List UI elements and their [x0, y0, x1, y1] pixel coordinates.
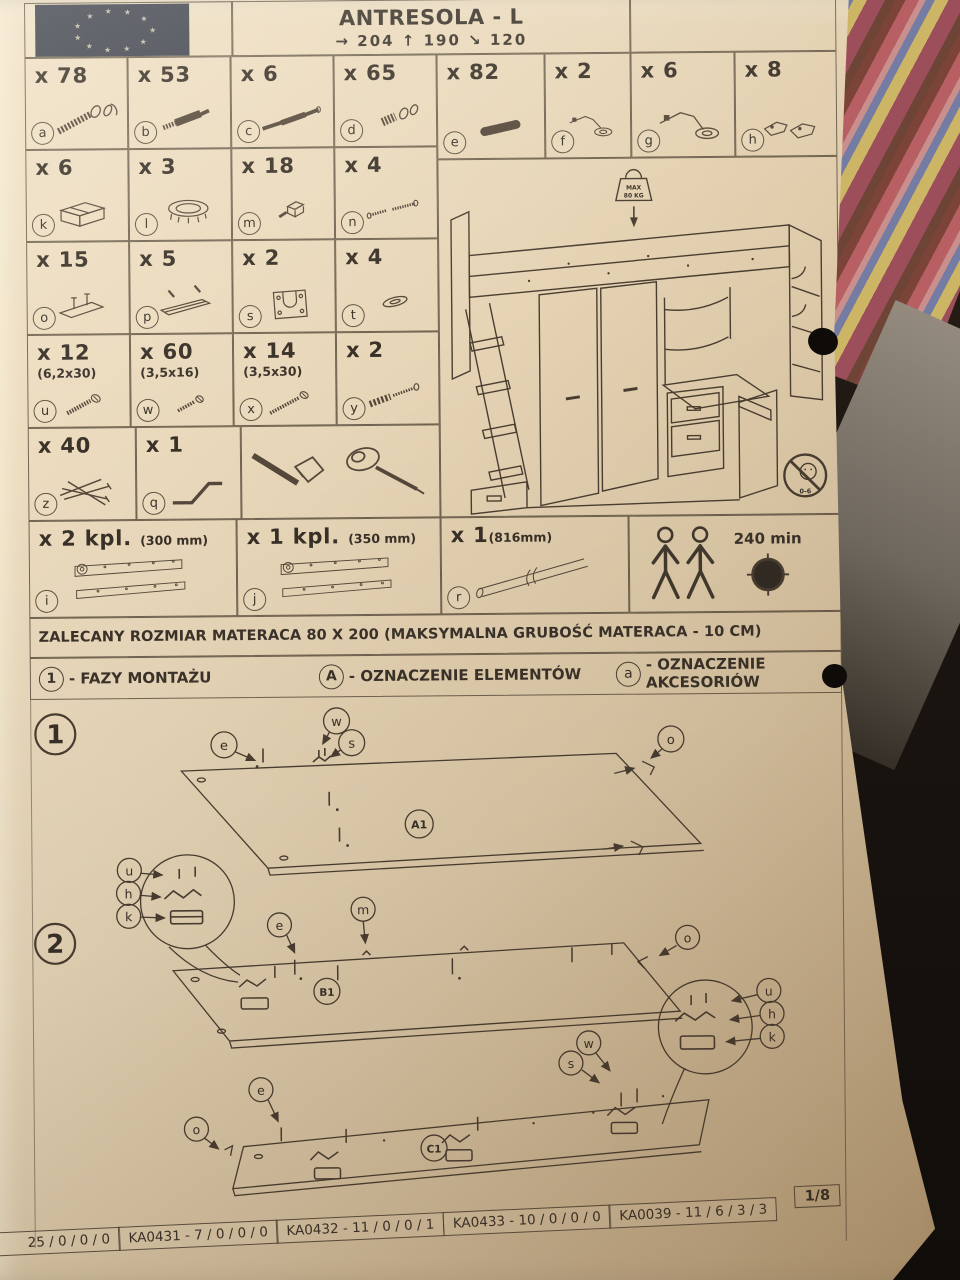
part-cell-m: x 18 m	[231, 147, 335, 240]
svg-text:s: s	[568, 1056, 575, 1071]
callout-e: e	[211, 732, 255, 761]
washer-icon	[360, 280, 435, 324]
part-cell-r: x 1(816mm) r	[441, 516, 630, 615]
legend-phase-text: - FAZY MONTAŻU	[69, 668, 212, 687]
wooden-dowel-icon	[462, 101, 541, 151]
callout-h: h	[116, 881, 160, 905]
part-cell-o: x 15 o	[26, 241, 130, 335]
callout-e-c1: e	[249, 1078, 281, 1142]
svg-text:80 KG: 80 KG	[624, 192, 644, 199]
svg-text:★: ★	[124, 8, 131, 17]
svg-text:e: e	[276, 918, 284, 933]
assembly-time: 240 min	[734, 529, 802, 548]
product-title: ANTRESOLA - L	[339, 4, 524, 30]
part-cell-p: x 5 p	[129, 240, 233, 334]
part-qty: x 78	[25, 58, 126, 88]
part-qty: x 2 kpl.	[39, 526, 133, 551]
instruction-sheet: ★★★ ★★★ ★★★ ★★ ANTRESOLA - L → 204 ↑ 190…	[0, 0, 960, 1280]
mounting-bracket-icon	[759, 99, 833, 149]
legend-band: 1 - FAZY MONTAŻU A - OZNACZENIE ELEMENTÓ…	[30, 651, 842, 700]
metal-rod-icon	[255, 96, 330, 140]
element-symbol: A	[319, 664, 344, 689]
part-cell-h: x 8 h	[734, 51, 837, 157]
panel-label-A1: A1	[405, 810, 433, 838]
wood-screw-icon	[155, 387, 230, 419]
logo-cell: ★★★ ★★★ ★★★ ★★	[24, 1, 232, 58]
round-tube-icon	[450, 547, 622, 607]
callout-o-b1: o	[638, 925, 700, 968]
part-cell-j: x 1 kpl. (350 mm) j	[237, 517, 442, 616]
svg-text:★: ★	[140, 14, 147, 23]
photo-of-instruction-sheet: ★★★ ★★★ ★★★ ★★ ANTRESOLA - L → 204 ↑ 190…	[0, 0, 960, 1280]
part-cell-k: x 6 k	[25, 149, 129, 242]
legend-elements: A - OZNACZENIE ELEMENTÓW	[319, 662, 581, 689]
part-cell-i: x 2 kpl. (300 mm) i	[29, 519, 238, 618]
drawer-slides-icon	[38, 552, 228, 611]
svg-text:w: w	[584, 1036, 594, 1051]
part-cell-u: x 12 (6,2x30) u	[27, 334, 131, 428]
assembly-info-cell: 240 min	[628, 514, 841, 613]
part-cell-l: x 3 l	[128, 148, 232, 241]
svg-text:w: w	[331, 715, 342, 730]
part-cell-w: x 60 (3,5x16) w	[130, 333, 234, 427]
step-1: 1	[35, 705, 704, 877]
product-dimensions: → 204 ↑ 190 ↘ 120	[335, 30, 527, 50]
callout-e-b1: e	[267, 913, 294, 953]
phase-symbol: 1	[39, 666, 64, 691]
svg-text:★: ★	[74, 33, 81, 42]
wood-screw-icon	[52, 388, 127, 420]
legend-elements-text: - OZNACZENIE ELEMENTÓW	[349, 665, 581, 685]
part-cell-z: x 40 z	[28, 427, 137, 521]
svg-text:★: ★	[86, 42, 93, 51]
svg-text:B1: B1	[319, 987, 334, 999]
cam-lock-icon	[358, 95, 433, 139]
machine-screws-icon	[359, 187, 434, 231]
allen-key-icon	[161, 467, 238, 511]
confirmat-screw-icon	[49, 98, 124, 142]
tools-cell	[241, 424, 441, 519]
callout-u2: u	[732, 978, 781, 1002]
ladder	[466, 303, 529, 514]
callout-k2: k	[726, 1024, 784, 1048]
callout-o-c1: o	[184, 1117, 232, 1156]
panel-label-B1: B1	[314, 978, 340, 1004]
mattress-note-band: ZALECANY ROZMIAR MATERACA 80 X 200 (MAKS…	[29, 611, 841, 658]
svg-text:★: ★	[86, 12, 93, 21]
part-cell-n: x 4 n	[334, 146, 438, 239]
panel-A1	[181, 753, 701, 869]
part-cell-y: x 2 y	[336, 331, 440, 425]
callout-o: o	[651, 726, 684, 758]
svg-text:A1: A1	[411, 818, 427, 831]
svg-text:★: ★	[74, 22, 81, 31]
timer-icon	[745, 551, 791, 597]
runner-block-icon	[50, 190, 125, 234]
svg-text:h: h	[125, 886, 133, 901]
panel-label-C1: C1	[421, 1135, 447, 1161]
svg-text:h: h	[768, 1006, 776, 1021]
panel-C1	[232, 1100, 710, 1189]
svg-text:MAX: MAX	[626, 184, 642, 191]
wall-plug-screw-icon	[361, 373, 436, 417]
svg-text:e: e	[220, 739, 228, 754]
svg-text:C1: C1	[426, 1143, 441, 1155]
detail-bubble-right: u h k	[658, 978, 785, 1124]
legend-accessories-text: - OZNACZENIE AKCESORIÓW	[646, 654, 841, 692]
svg-text:o: o	[193, 1122, 201, 1137]
svg-text:m: m	[357, 902, 369, 917]
legend-accessories: a - OZNACZENIE AKCESORIÓW	[616, 654, 841, 692]
part-cell-t: x 4 t	[335, 238, 439, 332]
shelf-support-icon	[256, 188, 331, 232]
callout-h2: h	[730, 1001, 784, 1025]
part-qty: x 1 kpl.	[247, 524, 341, 549]
svg-text:1: 1	[46, 720, 64, 750]
svg-text:★: ★	[123, 44, 130, 53]
page-indicator: 1/8	[794, 1184, 840, 1208]
part-cell-d: x 65 d	[333, 54, 437, 147]
u-bracket-icon	[257, 281, 332, 325]
assembly-steps-area: 1	[30, 693, 847, 1248]
step-2: 2 u h k	[34, 850, 785, 1198]
screwdriver-icon	[344, 444, 424, 494]
svg-text:2: 2	[46, 930, 64, 960]
assembly-steps-diagram: 1	[31, 693, 846, 1248]
flat-connector-icon	[51, 282, 126, 326]
part-size-note: (300 mm)	[140, 532, 208, 548]
svg-text:★: ★	[104, 45, 111, 54]
connector-bolt-icon	[152, 97, 227, 141]
round-grommet-icon	[153, 189, 228, 233]
svg-text:k: k	[769, 1029, 777, 1044]
cabinet-hinge-icon	[655, 99, 731, 149]
loft-bed-illustration: MAX 80 KG	[438, 157, 839, 516]
two-people-icon	[640, 523, 727, 604]
drawer-slides-icon	[246, 550, 432, 609]
svg-text:u: u	[125, 863, 133, 878]
svg-text:★: ★	[105, 7, 112, 16]
svg-text:e: e	[257, 1083, 265, 1098]
panel-B1	[173, 942, 681, 1041]
svg-text:o: o	[667, 733, 675, 748]
part-cell-x: x 14 (3,5x30) x	[233, 332, 337, 426]
accessory-symbol: a	[616, 661, 641, 686]
part-size-note: (350 mm)	[348, 531, 416, 547]
title-cell: ANTRESOLA - L → 204 ↑ 190 ↘ 120	[232, 0, 630, 56]
corner-desk	[525, 287, 777, 508]
tools-icons	[246, 439, 434, 512]
nails-icon	[54, 468, 133, 512]
legend-phase: 1 - FAZY MONTAŻU	[39, 665, 212, 692]
eu-flag-logo: ★★★ ★★★ ★★★ ★★	[33, 4, 191, 57]
furniture-overview-cell: MAX 80 KG	[437, 156, 840, 517]
callout-u: u	[117, 858, 162, 882]
part-qty: x 1	[451, 523, 489, 547]
part-cell-b: x 53 b	[127, 56, 231, 149]
hole-punch-mark	[822, 664, 847, 688]
part-size-note: (6,2x30)	[28, 364, 129, 381]
no-children-icon: 0-6	[784, 454, 826, 496]
part-badge-a: a	[31, 122, 54, 145]
wood-screw-icon	[258, 386, 333, 418]
max-load-icon: MAX 80 KG	[616, 169, 652, 227]
svg-text:u: u	[765, 983, 773, 998]
part-cell-a: x 78 a	[24, 57, 128, 150]
callout-m-b1: m	[351, 897, 375, 943]
svg-text:★: ★	[149, 26, 156, 35]
part-cell-q: x 1 q	[136, 426, 242, 520]
edge-strip-icon	[154, 282, 229, 326]
callout-s-c1: s	[559, 1051, 599, 1083]
revision-cell: 25 / 0 / 0 / 0	[0, 1227, 121, 1258]
part-cell-s: x 2 s	[232, 239, 336, 333]
mattress-note-text: ZALECANY ROZMIAR MATERACA 80 X 200 (MAKS…	[30, 624, 761, 646]
hammer-icon	[253, 455, 323, 484]
part-cell-f: x 2 f	[544, 53, 631, 159]
document-content: ★★★ ★★★ ★★★ ★★ ANTRESOLA - L → 204 ↑ 190…	[24, 0, 836, 3]
svg-text:k: k	[125, 909, 133, 924]
part-cell-g: x 6 g	[630, 52, 735, 158]
header-spacer-cell	[630, 0, 836, 53]
svg-text:0-6: 0-6	[799, 487, 811, 495]
callout-w-c1: w	[577, 1031, 610, 1071]
detail-bubble-left: u h k	[116, 854, 240, 983]
part-size-note: (816mm)	[488, 529, 552, 545]
callout-w: w	[322, 708, 349, 744]
wardrobe-doors	[539, 282, 658, 506]
svg-text:o: o	[684, 930, 692, 945]
svg-text:s: s	[348, 737, 355, 752]
svg-text:★: ★	[140, 37, 147, 46]
part-cell-e: x 82 e	[436, 53, 545, 159]
part-cell-c: x 6 c	[230, 55, 334, 148]
